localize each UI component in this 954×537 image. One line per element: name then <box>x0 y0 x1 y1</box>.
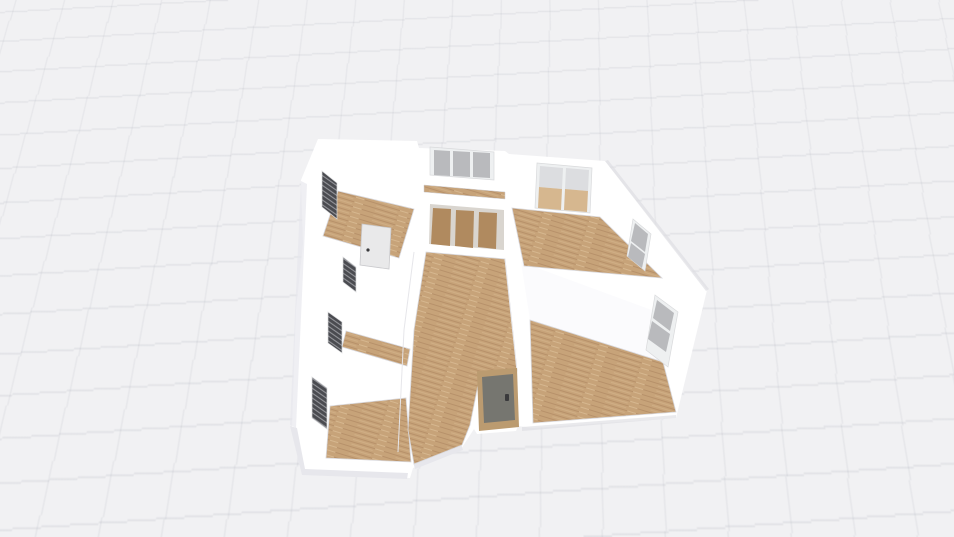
wardrobe-panel <box>431 208 451 246</box>
floor-hallway[interactable] <box>408 252 517 464</box>
wardrobe-panel <box>478 212 497 249</box>
front-door-panel <box>482 374 515 423</box>
door-glass-upper <box>539 166 563 189</box>
front-door-handle <box>505 394 509 401</box>
interior-door-open[interactable] <box>360 224 391 269</box>
door-leaf <box>360 224 391 269</box>
door-handle <box>366 248 369 251</box>
back-triple-window[interactable] <box>430 147 494 180</box>
wardrobe-panel <box>455 210 474 248</box>
floor-bottom-left-room[interactable] <box>326 398 411 462</box>
window-pane <box>453 151 470 177</box>
window-pane <box>473 152 490 178</box>
viewport-3d[interactable] <box>0 0 954 537</box>
french-double-door[interactable] <box>535 163 592 213</box>
front-door[interactable] <box>477 368 519 431</box>
door-glass-lower <box>564 189 588 212</box>
door-glass-lower <box>538 187 562 210</box>
door-glass-upper <box>565 168 589 191</box>
house-render <box>0 0 954 537</box>
window-pane <box>434 150 450 176</box>
wardrobe-sliding-doors[interactable] <box>429 204 504 250</box>
